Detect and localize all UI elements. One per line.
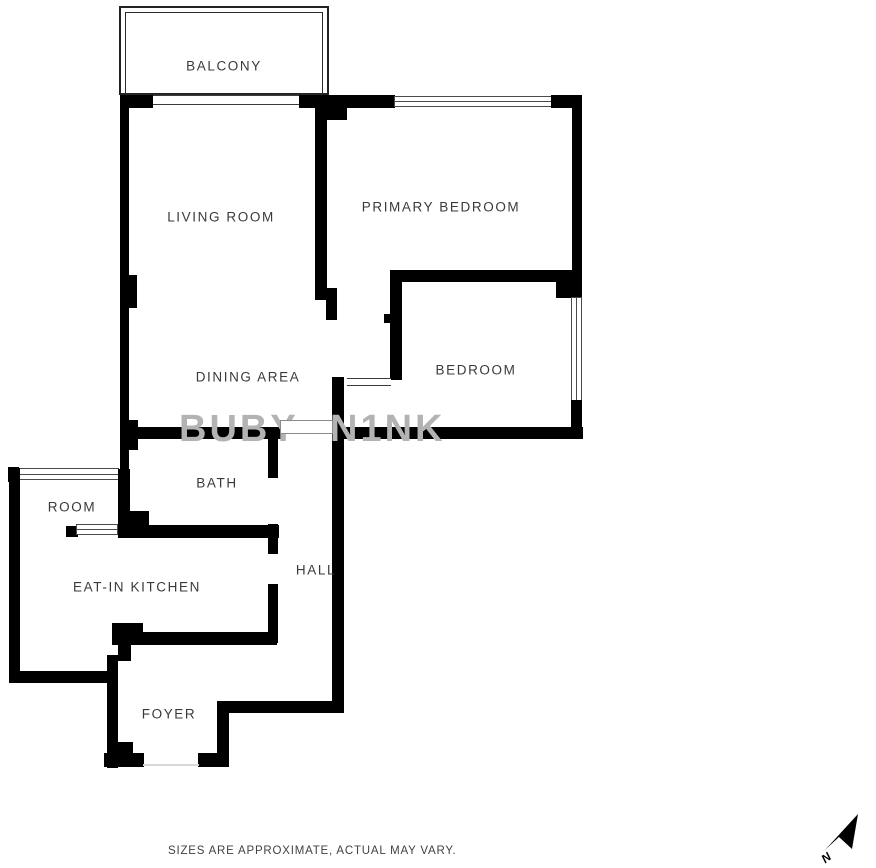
wall-segment [397,270,557,282]
room-label-hall: HALL [296,563,336,578]
room-label-foyer: FOYER [142,707,197,722]
door-jamb [384,314,391,323]
bedroom-door-threshold [347,378,391,386]
wall-segment [556,270,582,298]
north-arrow-label: N [819,849,835,866]
wall-segment [9,468,20,683]
wall-segment [326,288,337,320]
room-label-primary-bedroom: PRIMARY BEDROOM [362,200,521,215]
balcony-outline-inner [125,12,323,95]
room-label-balcony: BALCONY [186,59,262,74]
room-window [17,468,119,480]
primary-bedroom-window [394,96,552,107]
room-label-room: ROOM [48,500,96,515]
wall-segment [104,753,144,767]
wall-segment [143,632,277,645]
north-arrow-shape [825,814,858,850]
entry-door-threshold [143,764,199,766]
wall-segment [128,525,279,538]
watermark-text: N1NK [330,410,445,448]
wall-segment [315,108,327,290]
wall-segment [217,701,344,713]
balcony-door-threshold [153,95,299,105]
wall-segment [10,671,108,683]
interior-window [76,524,118,535]
wall-segment [390,270,402,380]
floor-plan: BUBY N1NK BALCONY LIVING ROOM PRIMARY BE… [0,0,876,868]
wall-segment [112,623,143,645]
wall-segment [118,469,130,538]
wall-segment [299,95,395,108]
wall-segment [117,742,133,755]
wall-segment [127,275,137,308]
bedroom-window [571,297,582,401]
hall-opening-threshold [280,420,333,434]
room-label-eat-in-kitchen: EAT-IN KITCHEN [73,580,201,595]
north-arrow-icon: N [818,800,876,866]
wall-segment [118,643,131,661]
disclaimer-text: SIZES ARE APPROXIMATE, ACTUAL MAY VARY. [168,845,456,857]
room-label-living-room: LIVING ROOM [167,210,275,225]
wall-segment [572,95,582,298]
wall-segment [198,753,229,767]
room-label-dining-area: DINING AREA [196,370,301,385]
room-label-bath: BATH [196,476,237,491]
room-label-bedroom: BEDROOM [436,363,517,378]
